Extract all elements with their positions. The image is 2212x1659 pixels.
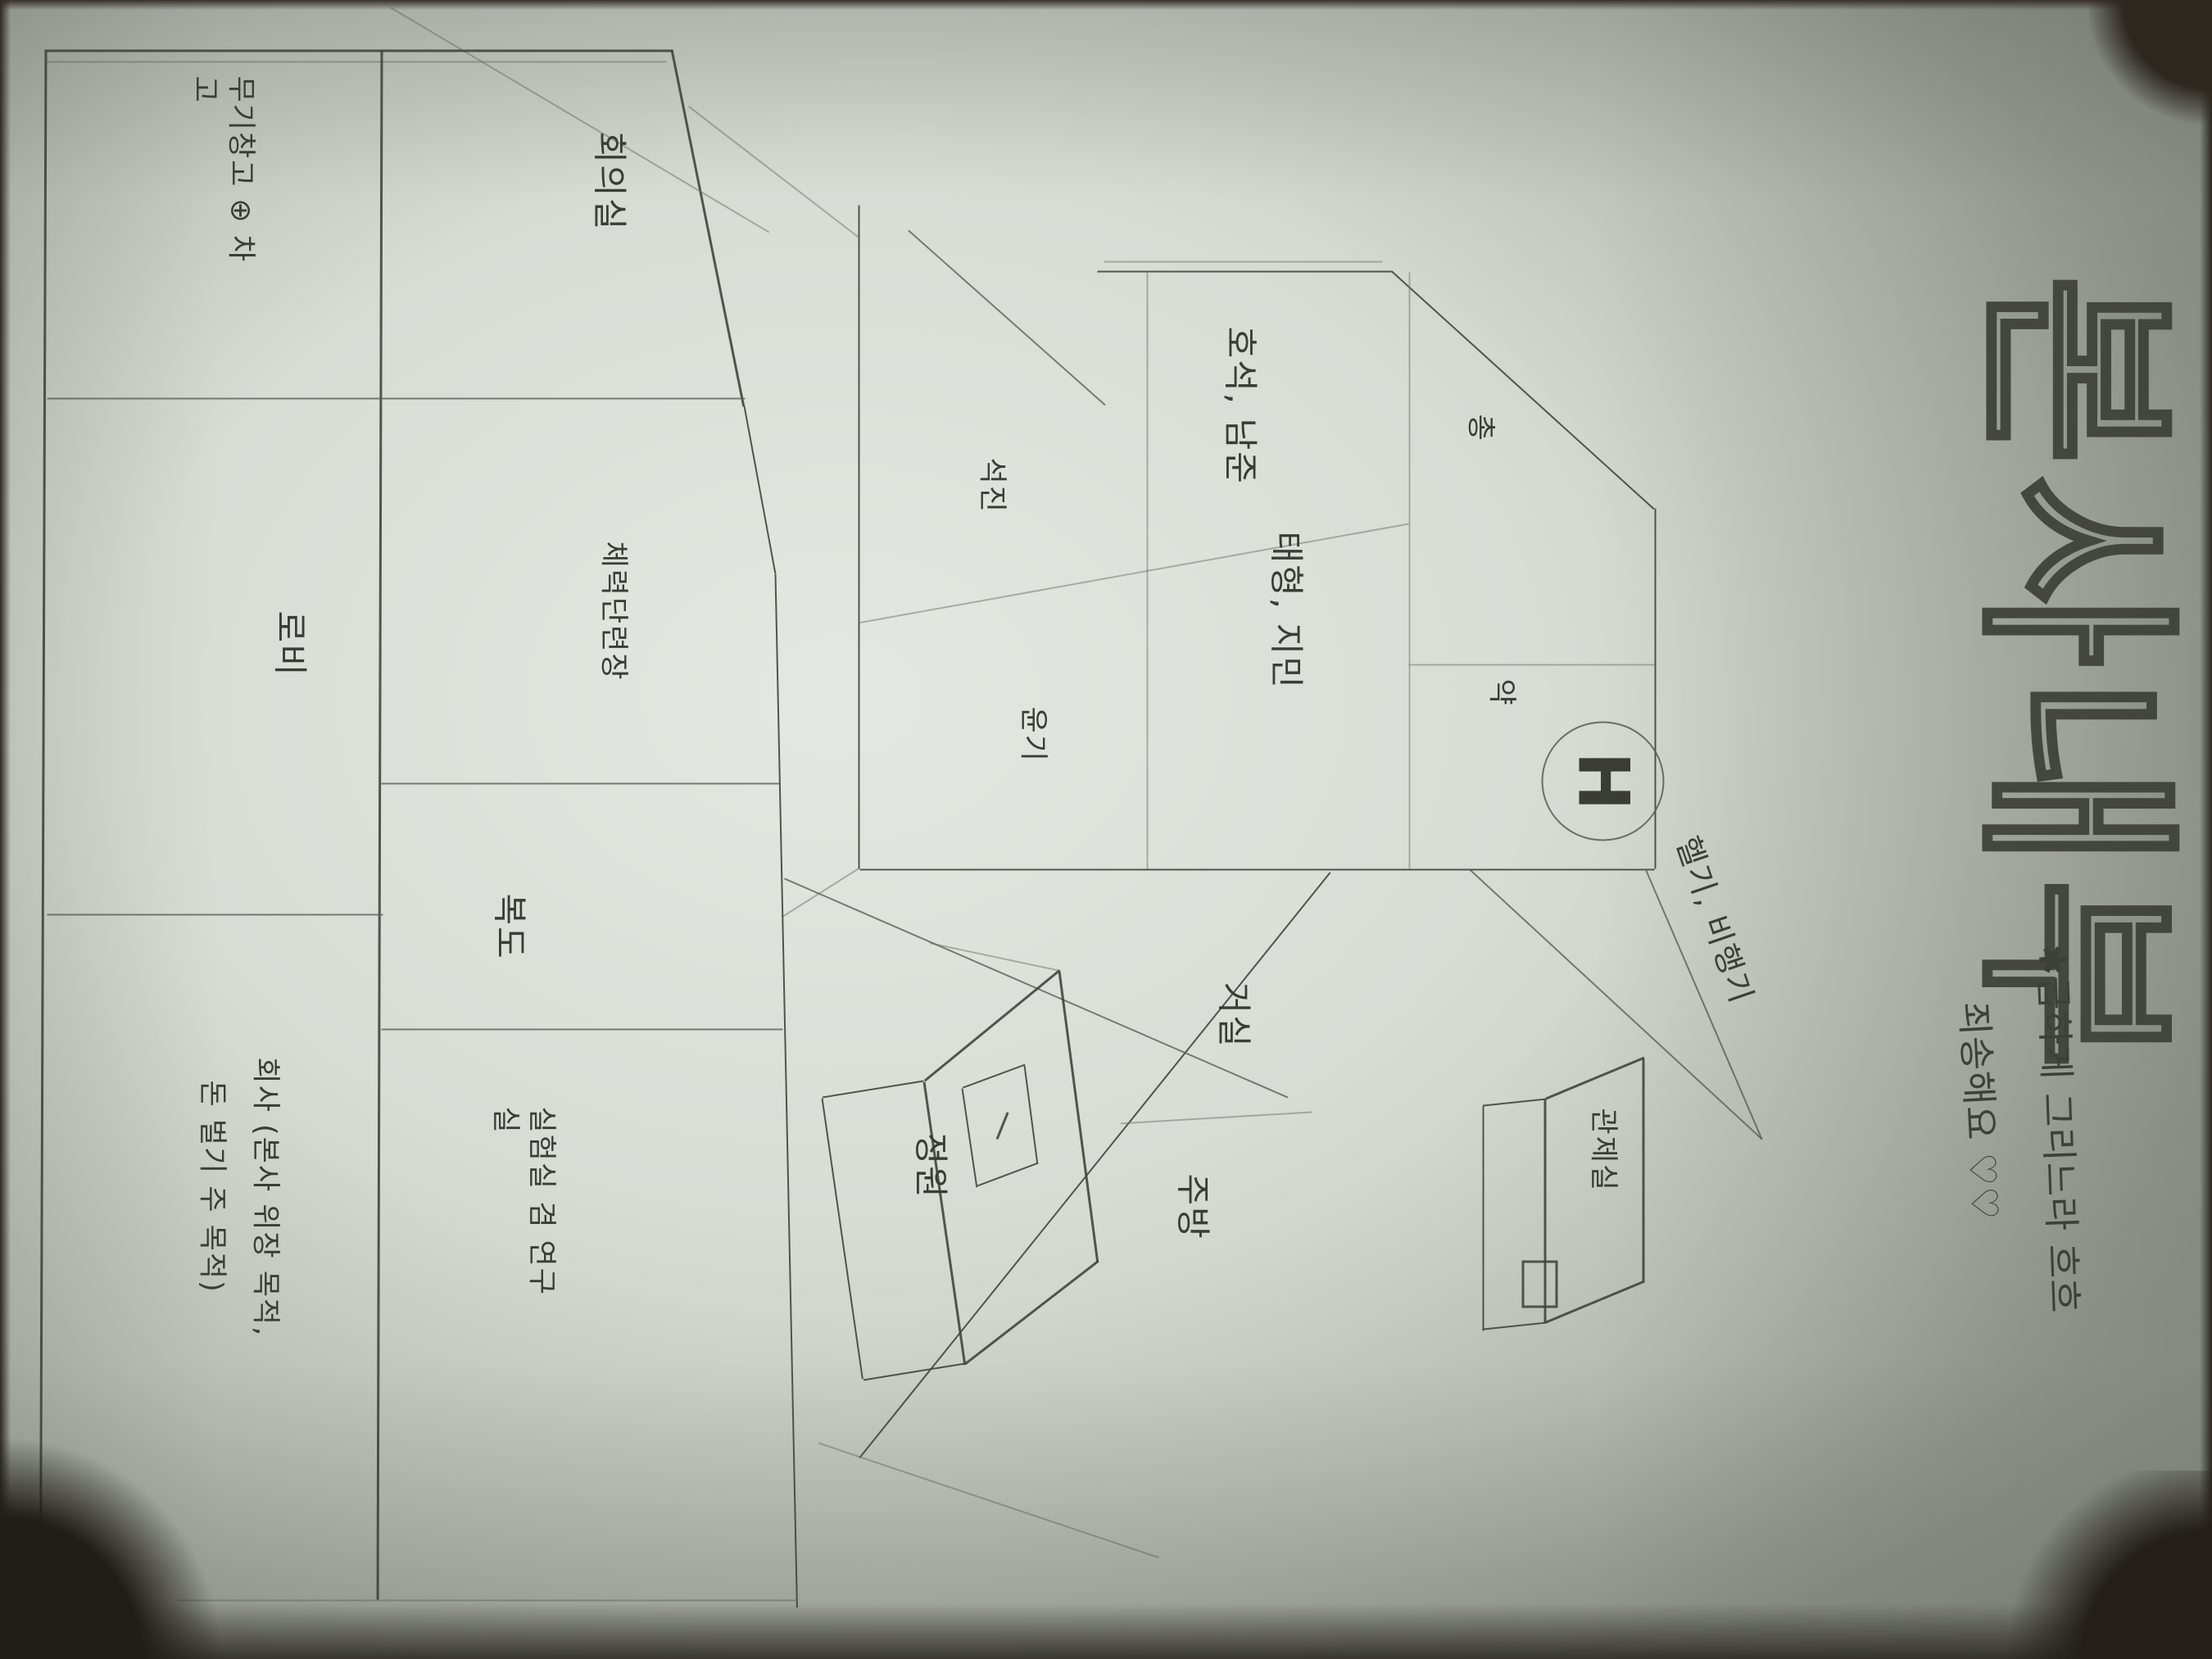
room-divider xyxy=(1409,664,1655,666)
wall-line xyxy=(1655,509,1657,869)
room-label-living-room: 거실 xyxy=(1212,982,1255,1049)
wall-line-double xyxy=(1104,261,1383,263)
box-edge xyxy=(1483,1322,1547,1330)
hatch-edge xyxy=(1024,1066,1039,1164)
wall-line xyxy=(859,206,860,869)
wall-line-double xyxy=(48,61,667,63)
wall-line xyxy=(775,574,798,1608)
box-edge xyxy=(1483,1099,1547,1107)
helipad-label: 헬기, 비행기 xyxy=(1667,830,1766,1009)
box-edge xyxy=(1483,1107,1484,1331)
room-label-lobby: 로비 xyxy=(268,611,311,678)
room-label-garden: 정원 xyxy=(909,1133,952,1199)
room-divider xyxy=(48,914,383,916)
helipad-circle: H xyxy=(1542,722,1665,841)
room-label-gun: 총 xyxy=(1462,415,1498,442)
hatch-edge xyxy=(977,1163,1039,1187)
box-edge xyxy=(923,1082,967,1366)
box-edge xyxy=(863,1363,965,1381)
box-edge xyxy=(930,942,1058,971)
box-edge xyxy=(1545,1281,1644,1324)
room-label-corridor: 복도 xyxy=(487,894,531,960)
wall-line xyxy=(908,230,1105,406)
room-label-medicine: 약 xyxy=(1483,679,1519,707)
photo-of-hand-drawn-floorplan: 본사내부 ✱급하게 그리느라 흐흐 죄송해요 ♡♡ 총 약 호석, 남준 태형,… xyxy=(0,0,2212,1659)
room-label-yoongi: 윤기 xyxy=(1014,707,1050,763)
box-edge xyxy=(1643,1059,1645,1283)
hatch-edge xyxy=(963,1064,1026,1089)
room-label-taehyung-jimin: 태형, 지민 xyxy=(1264,532,1308,690)
wall-line xyxy=(39,49,47,1561)
connector-line xyxy=(688,106,859,238)
room-label-company-line2: 돈 벌기 주 목적) xyxy=(193,1081,229,1294)
room-divider xyxy=(48,398,746,400)
hatch-edge xyxy=(962,1089,978,1188)
wall-line xyxy=(860,869,1655,871)
box-edge xyxy=(1058,972,1099,1262)
room-label-kitchen: 주방 xyxy=(1171,1174,1214,1240)
box-edge xyxy=(1545,1057,1644,1100)
hatch-handle-mark xyxy=(996,1112,1009,1140)
wall-line-faint xyxy=(178,1600,796,1602)
wall-line xyxy=(744,406,777,574)
room-label-hoseok-namjoon: 호석, 남준 xyxy=(1218,327,1262,485)
box-edge xyxy=(924,969,1061,1081)
box-edge xyxy=(822,1099,863,1380)
box-edge xyxy=(964,1260,1099,1365)
room-label-lab: 실험실 겸 연구실 xyxy=(487,1107,559,1312)
wall-line-faint xyxy=(390,7,769,233)
room-label-armory: 무기창고 ⊕ 차고 xyxy=(186,76,258,273)
room-divider xyxy=(382,1029,783,1031)
box-edge xyxy=(823,1081,924,1099)
helipad-h-letter: H xyxy=(1562,752,1644,811)
room-divider xyxy=(382,783,780,785)
wall-line xyxy=(1098,271,1393,273)
room-label-control-room: 관제실 xyxy=(1584,1108,1620,1193)
room-label-company-line1: 회사 (본사 위장 목적, xyxy=(247,1058,283,1338)
room-label-gym: 체력단련장 xyxy=(595,542,631,682)
wall-line xyxy=(1391,271,1654,510)
room-divider xyxy=(859,524,1409,624)
room-label-seokjin: 석진 xyxy=(973,458,1009,514)
room-label-meeting-room: 회의실 xyxy=(587,132,631,232)
sketch-page: 본사내부 ✱급하게 그리느라 흐흐 죄송해요 ♡♡ 총 약 호석, 남준 태형,… xyxy=(0,1,2212,1659)
wall-line xyxy=(818,1443,1159,1559)
control-room-door xyxy=(1522,1261,1558,1308)
row-divider xyxy=(377,49,383,1599)
room-divider xyxy=(1121,1112,1312,1125)
wall-line xyxy=(47,50,673,52)
room-divider xyxy=(1409,273,1411,869)
wall-line xyxy=(671,50,746,407)
